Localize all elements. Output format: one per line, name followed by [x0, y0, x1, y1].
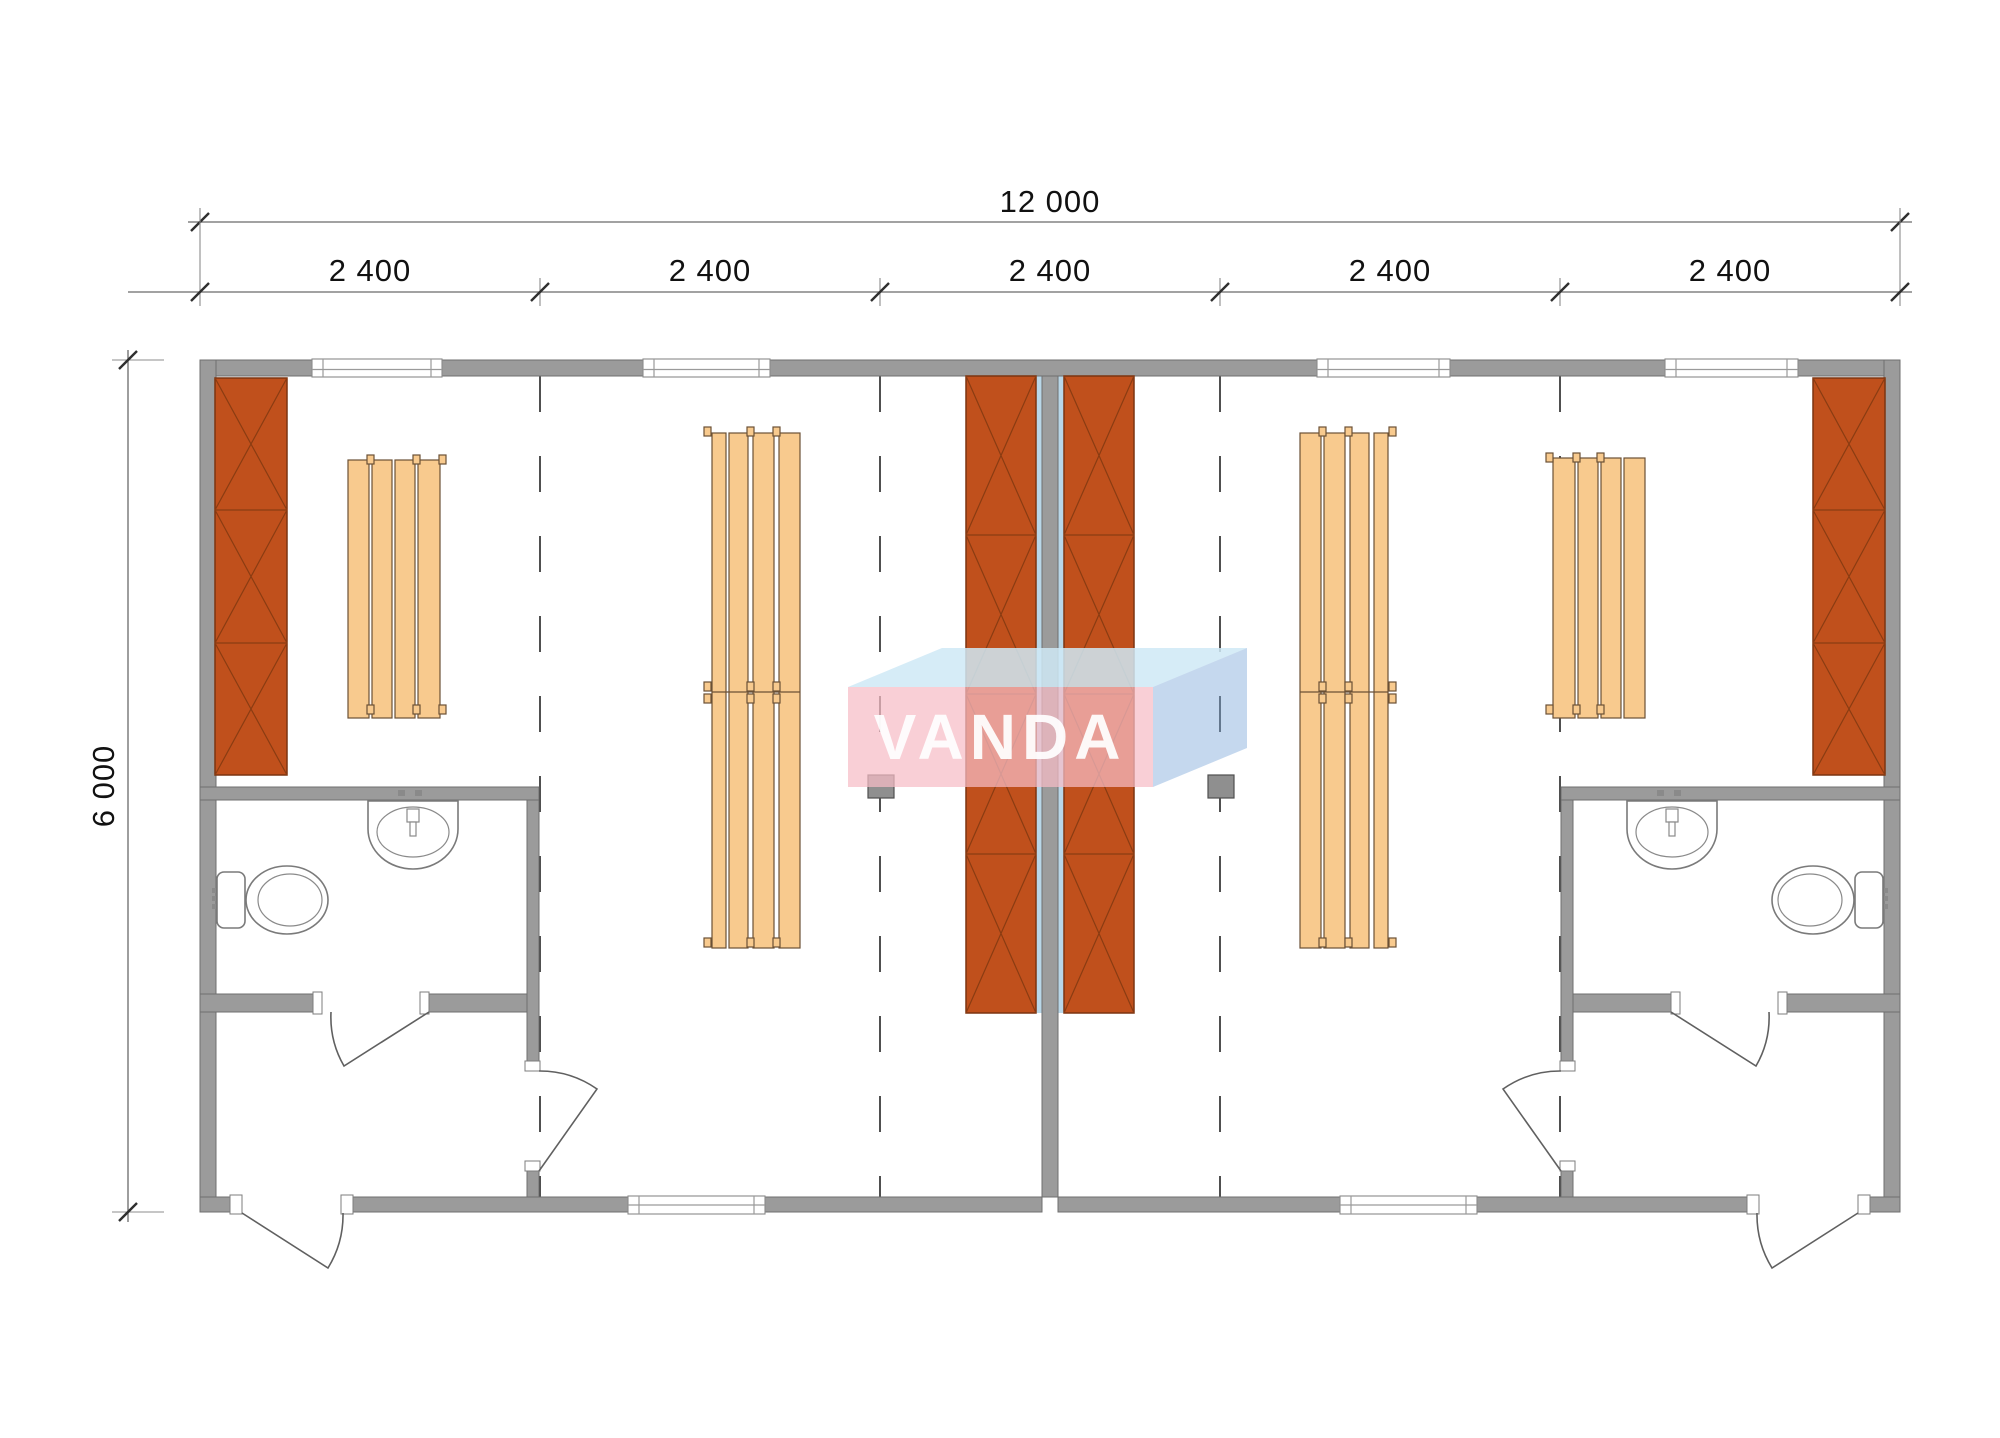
window — [1340, 1196, 1477, 1214]
dimension-label-module-3: 2 400 — [1009, 253, 1092, 288]
exterior-wall-left — [200, 360, 216, 1212]
sink-icon — [368, 790, 458, 869]
bench — [704, 427, 800, 948]
entry-door-swing — [242, 1213, 343, 1268]
bathroom-wall — [1561, 994, 1671, 1012]
dimension-label-module-4: 2 400 — [1349, 253, 1432, 288]
dimension-label-module-5: 2 400 — [1689, 253, 1772, 288]
toilet-icon — [212, 866, 328, 934]
bathroom-wall — [200, 787, 539, 800]
dimension-label-module-1: 2 400 — [329, 253, 412, 288]
bench — [1300, 427, 1396, 948]
bathroom-wall — [1787, 994, 1900, 1012]
hall-partition-wall — [1561, 800, 1573, 1061]
sink-icon — [1627, 790, 1717, 869]
window — [1665, 359, 1798, 377]
window — [643, 359, 770, 377]
interior-door-swing — [1503, 1071, 1561, 1171]
bathroom-wall — [429, 994, 539, 1012]
toilet-icon — [1772, 866, 1888, 934]
bathroom-wall — [200, 994, 313, 1012]
vanda-watermark: VANDA — [848, 648, 1247, 787]
floor-plan: 12 000 2 400 2 400 2 400 2 400 2 400 6 0… — [0, 0, 2000, 1438]
exterior-wall-bottom — [200, 1197, 230, 1212]
dimension-label-overall-width: 12 000 — [1000, 184, 1101, 219]
exterior-wall-bottom — [1870, 1197, 1900, 1212]
interior-door-swing — [539, 1071, 597, 1171]
hall-partition-wall — [527, 1171, 539, 1197]
storage-cabinet — [1813, 378, 1885, 775]
entry-door-swing — [1757, 1213, 1858, 1268]
bathroom-door-swing — [331, 1012, 429, 1066]
hall-partition-wall — [1561, 1171, 1573, 1197]
dimension-label-module-2: 2 400 — [669, 253, 752, 288]
floor-plan-page: 12 000 2 400 2 400 2 400 2 400 2 400 6 0… — [0, 0, 2000, 1438]
exterior-wall-top — [200, 360, 1900, 376]
dimension-label-overall-height: 6 000 — [86, 745, 121, 828]
storage-cabinet — [215, 378, 287, 775]
window — [1317, 359, 1450, 377]
sauna-heater — [1208, 775, 1234, 798]
hall-partition-wall — [527, 800, 539, 1061]
window — [312, 359, 442, 377]
bathroom-wall — [1561, 787, 1900, 800]
exterior-wall-right — [1884, 360, 1900, 1212]
logo-text: VANDA — [874, 701, 1127, 773]
window — [628, 1196, 765, 1214]
bathroom-door-swing — [1671, 1012, 1769, 1066]
bench — [1546, 453, 1645, 718]
bench — [348, 455, 446, 718]
